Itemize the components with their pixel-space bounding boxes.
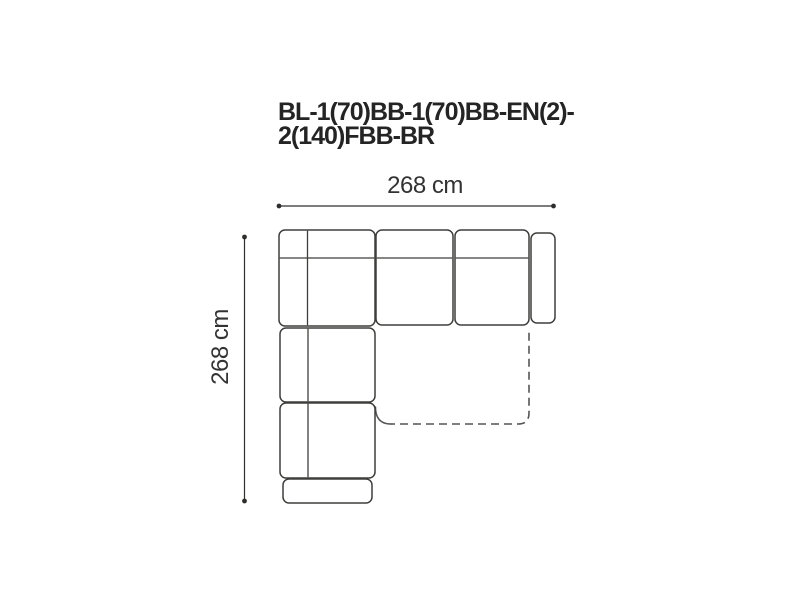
seat-module-2 — [455, 230, 529, 325]
dimension-endpoint-dot — [242, 499, 247, 504]
front-armrest — [283, 479, 372, 503]
depth-dimension-line — [242, 235, 247, 504]
product-dimension-diagram: BL-1(70)BB-1(70)BB-EN(2)- 2(140)FBB-BR 2… — [0, 0, 800, 600]
dimension-endpoint-dot — [277, 204, 282, 209]
corner-module — [279, 230, 375, 326]
fold-out-bed-outline — [376, 329, 530, 424]
seat-module-1 — [376, 230, 453, 325]
dimension-endpoint-dot — [242, 235, 247, 240]
width-dimension-line — [277, 204, 556, 209]
sofa-top-view-drawing — [0, 0, 800, 600]
chaise-module-2 — [280, 403, 375, 478]
dimension-endpoint-dot — [551, 204, 556, 209]
chaise-module-1 — [280, 328, 375, 402]
right-armrest — [531, 233, 555, 323]
